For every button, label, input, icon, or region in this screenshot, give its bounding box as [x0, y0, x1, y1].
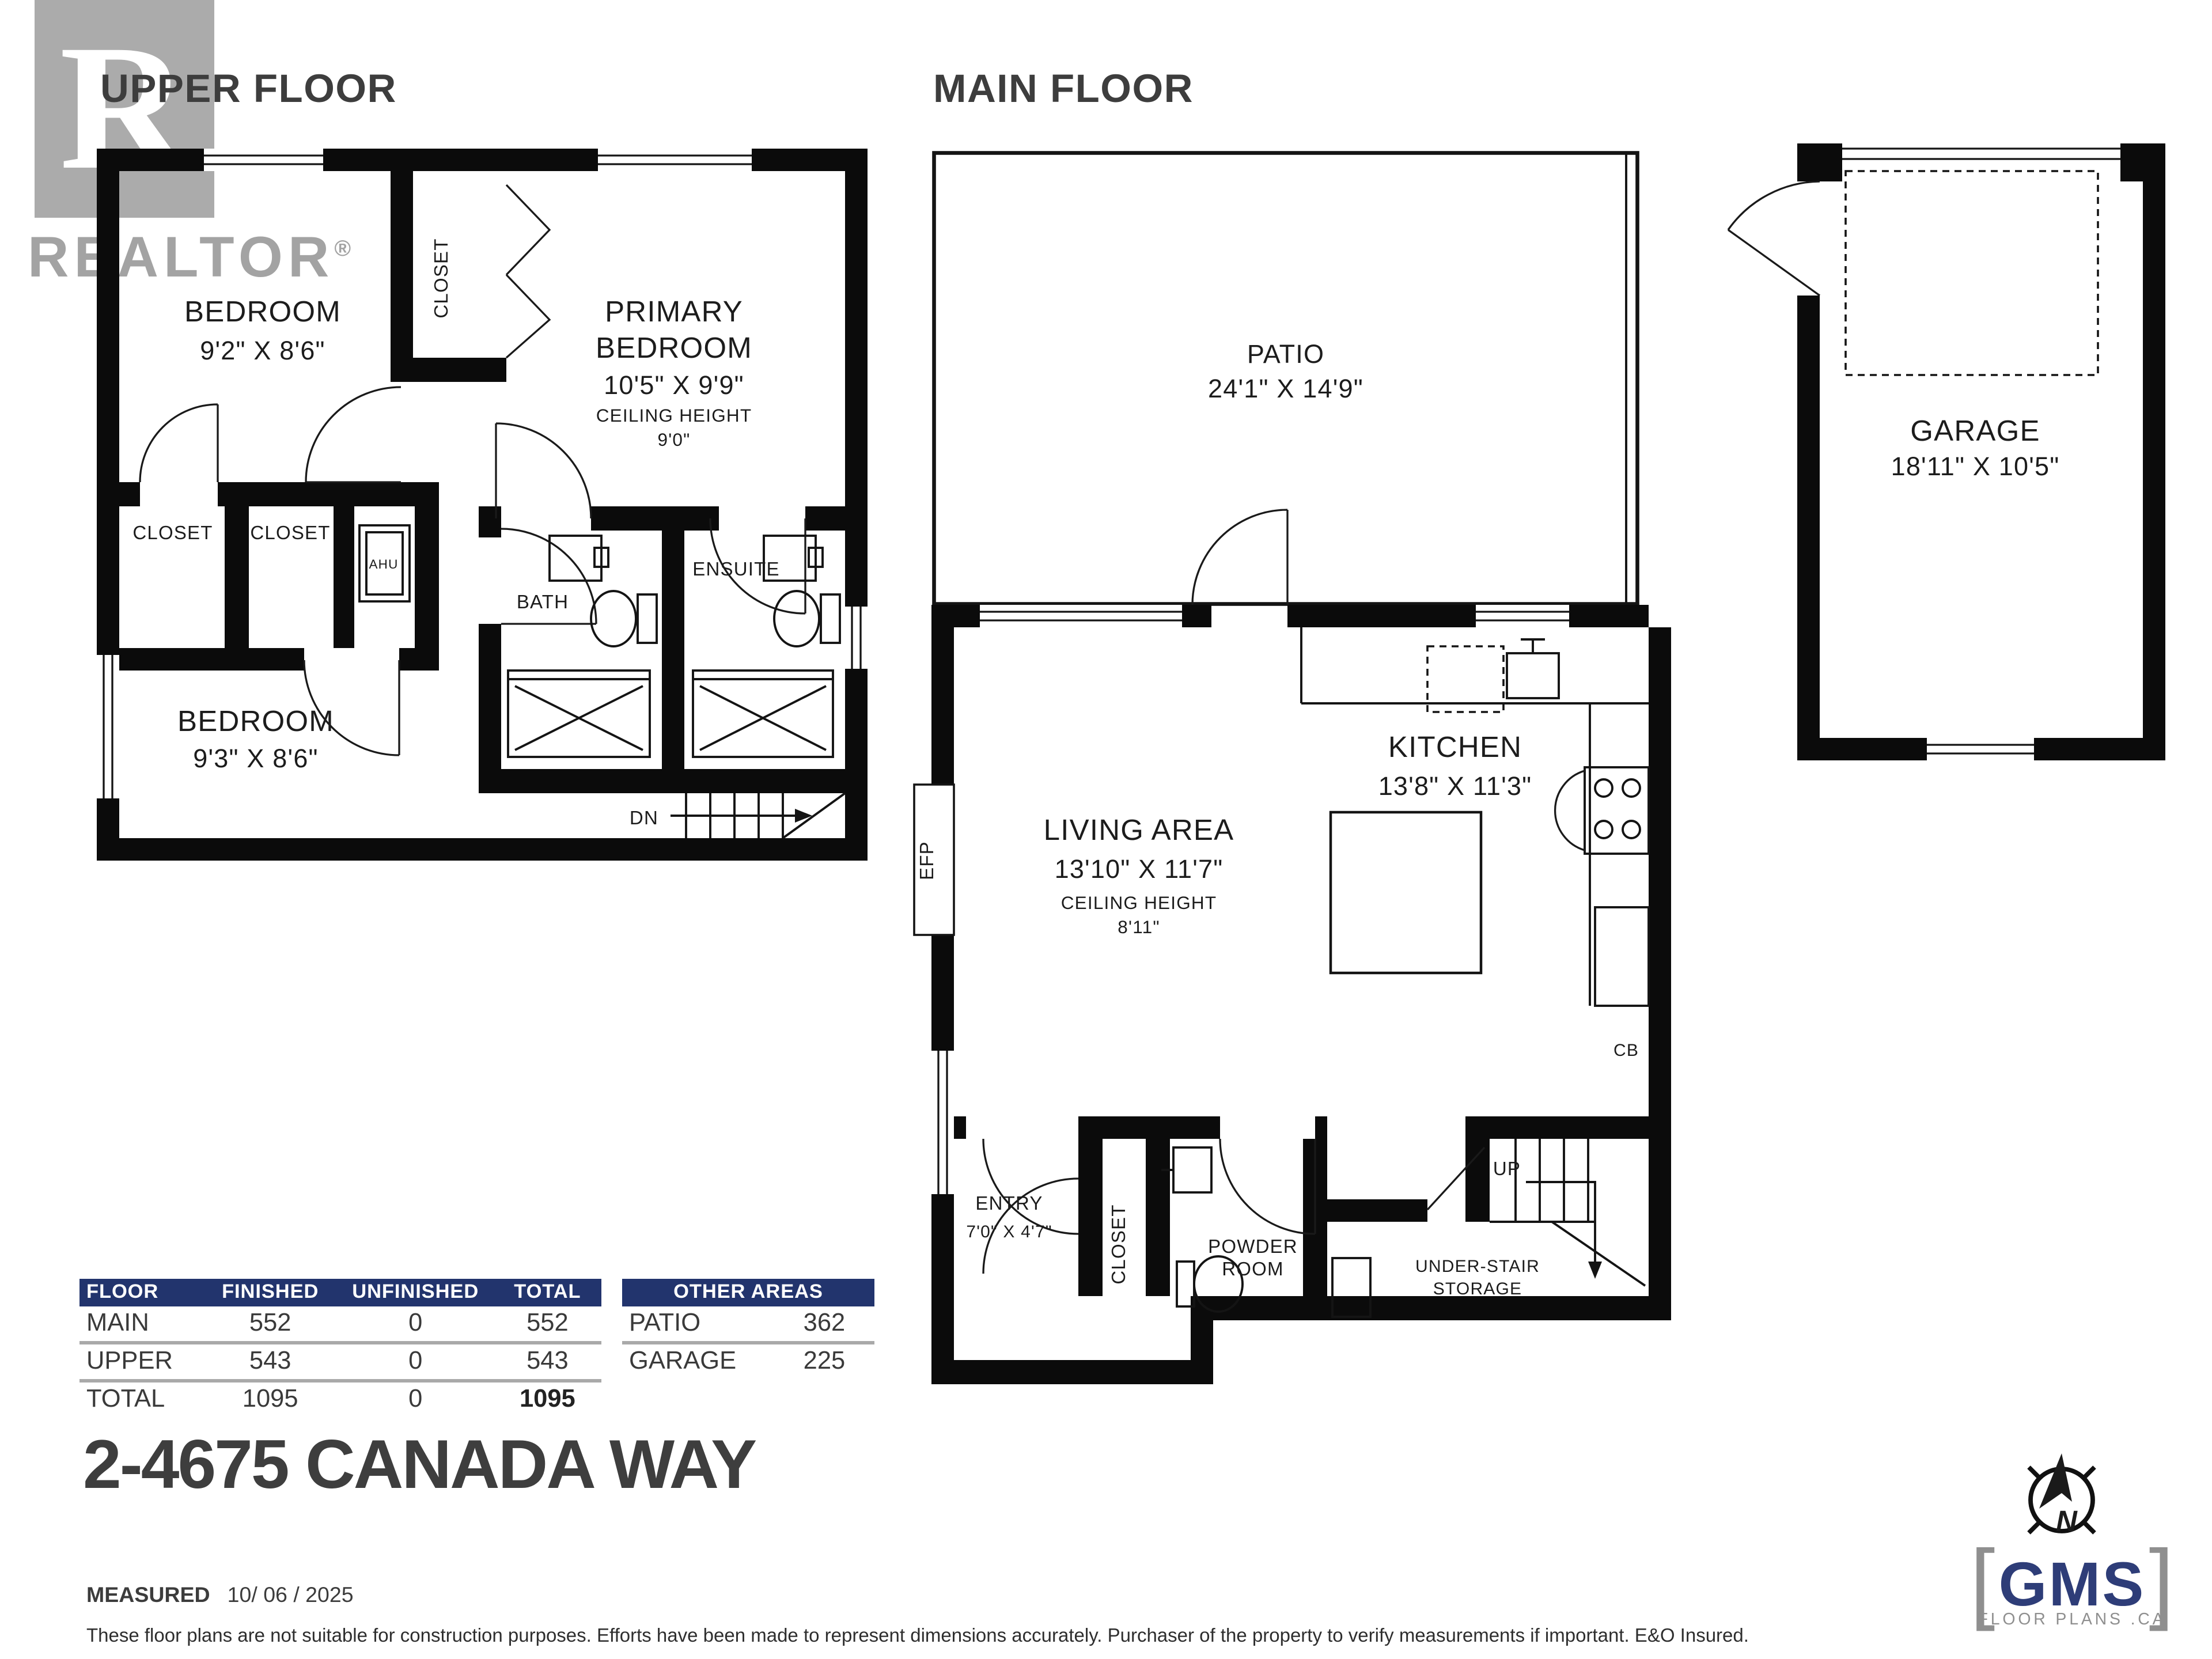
- garage-plan: GARAGE 18'11" X 10'5": [1694, 143, 2165, 760]
- logo-tagline: FLOOR PLANS .CA: [1960, 1610, 2184, 1629]
- cell-unfinished: 0: [338, 1343, 494, 1381]
- room-dims-patio: 24'1" X 14'9": [1208, 374, 1363, 403]
- room-label-closet-mid: CLOSET: [250, 522, 330, 543]
- stairs-dn-label: DN: [630, 807, 658, 828]
- measured-label: MEASURED: [86, 1583, 210, 1607]
- cell-finished: 543: [203, 1343, 338, 1381]
- room-label-bedroom2: BEDROOM: [177, 704, 334, 737]
- upper-floor-title: UPPER FLOOR: [100, 66, 397, 112]
- room-label-storage-1: UNDER-STAIR: [1415, 1257, 1540, 1276]
- table-total-row: TOTAL 1095 0 1095: [79, 1381, 601, 1417]
- efp-label: EFP: [916, 841, 937, 880]
- kitchen-island: [1331, 812, 1481, 973]
- table-header-row: OTHER AREAS: [622, 1279, 874, 1306]
- col-header-finished: FINISHED: [203, 1279, 338, 1306]
- other-areas-table: OTHER AREAS PATIO 362 GARAGE 225: [622, 1279, 874, 1379]
- room-ceiling-value-living: 8'11": [1118, 916, 1160, 937]
- room-label-closet-top: CLOSET: [430, 238, 452, 318]
- room-dims-bedroom1: 9'2" X 8'6": [200, 336, 325, 365]
- compass-icon: N: [2012, 1448, 2112, 1548]
- main-floor-title: MAIN FLOOR: [933, 66, 1194, 112]
- logo-bracket-right: ]: [2149, 1548, 2174, 1620]
- disclaimer-text: These floor plans are not suitable for c…: [86, 1626, 1538, 1647]
- col-header-floor: FLOOR: [79, 1279, 203, 1306]
- measured-date: MEASURED10/ 06 / 2025: [86, 1583, 354, 1607]
- table-row: PATIO 362: [622, 1306, 874, 1343]
- table-row: MAIN 552 0 552: [79, 1306, 601, 1343]
- room-label-closet-left: CLOSET: [132, 522, 213, 543]
- toilet-icon: [591, 591, 840, 646]
- main-floor-plan: PATIO 24'1" X 14'9" EFP CB LIVING AREA 1…: [914, 149, 1683, 1402]
- room-ceiling-label-primary: CEILING HEIGHT: [596, 405, 752, 426]
- room-label-entry: ENTRY: [975, 1192, 1043, 1214]
- stove-icon: [1555, 767, 1649, 854]
- col-header-other-areas: OTHER AREAS: [622, 1279, 874, 1306]
- cell-area-name: GARAGE: [622, 1343, 774, 1379]
- measured-value: 10/ 06 / 2025: [228, 1583, 354, 1607]
- stairs-down: [671, 793, 845, 838]
- room-label-kitchen: KITCHEN: [1388, 730, 1522, 763]
- compass-north-label: N: [2056, 1505, 2078, 1537]
- cb-label: CB: [1613, 1041, 1639, 1060]
- cell-total-finished: 1095: [203, 1381, 338, 1417]
- table-row: GARAGE 225: [622, 1343, 874, 1379]
- room-ceiling-value-primary: 9'0": [657, 429, 690, 450]
- upper-floor-plan: BEDROOM 9'2" X 8'6" CLOSET PRIMARY BEDRO…: [97, 149, 868, 861]
- property-address: 2-4675 CANADA WAY: [83, 1427, 755, 1505]
- kitchen-counter: [1301, 627, 1649, 1006]
- cell-finished: 552: [203, 1306, 338, 1343]
- window-icon: [931, 605, 1569, 1194]
- room-label-garage: GARAGE: [1910, 414, 2040, 447]
- room-label-powder-2: ROOM: [1222, 1258, 1283, 1279]
- room-dims-garage: 18'11" X 10'5": [1891, 452, 2060, 481]
- cell-area-value: 225: [774, 1343, 874, 1379]
- dishwasher-icon: [1427, 646, 1503, 712]
- room-ceiling-label-living: CEILING HEIGHT: [1061, 892, 1217, 913]
- cell-unfinished: 0: [338, 1306, 494, 1343]
- table-row: UPPER 543 0 543: [79, 1343, 601, 1381]
- door-arc-icon: [1192, 510, 1287, 605]
- cell-total: 552: [494, 1306, 601, 1343]
- area-table: FLOOR FINISHED UNFINISHED TOTAL MAIN 552…: [79, 1279, 601, 1417]
- logo-name: GMS: [1995, 1556, 2149, 1612]
- col-header-unfinished: UNFINISHED: [338, 1279, 494, 1306]
- room-label-living: LIVING AREA: [1044, 813, 1234, 846]
- window-icon: [1927, 738, 2034, 760]
- room-dims-primary: 10'5" X 9'9": [604, 370, 744, 400]
- room-label-powder-1: POWDER: [1208, 1236, 1298, 1257]
- logo-bracket-left: [: [1970, 1548, 1995, 1620]
- cell-total: 543: [494, 1343, 601, 1381]
- stairs-up-label: UP: [1493, 1158, 1521, 1179]
- room-dims-bedroom2: 9'3" X 8'6": [193, 744, 318, 773]
- cell-total-total: 1095: [494, 1381, 601, 1417]
- cell-floor: MAIN: [79, 1306, 203, 1343]
- cell-total-unfinished: 0: [338, 1381, 494, 1417]
- cell-area-name: PATIO: [622, 1306, 774, 1343]
- kitchen-sink-icon: [1507, 639, 1559, 698]
- sink-icon: [550, 536, 823, 581]
- efp-panel: EFP: [914, 785, 954, 935]
- parking-space-outline: [1846, 171, 2098, 375]
- room-label-ensuite: ENSUITE: [692, 558, 779, 579]
- room-label-patio: PATIO: [1247, 339, 1324, 369]
- room-dims-entry: 7'0" X 4'7": [966, 1222, 1052, 1241]
- room-label-closet-main: CLOSET: [1108, 1204, 1129, 1284]
- door-arc-icon: [1220, 1139, 1315, 1234]
- cell-area-value: 362: [774, 1306, 874, 1343]
- room-label-bedroom1: BEDROOM: [184, 295, 341, 328]
- door-arc-icon: [1728, 181, 1820, 296]
- room-label-primary-2: BEDROOM: [596, 331, 752, 364]
- table-header-row: FLOOR FINISHED UNFINISHED TOTAL: [79, 1279, 601, 1306]
- room-dims-kitchen: 13'8" X 11'3": [1378, 771, 1532, 801]
- room-label-bath: BATH: [517, 591, 569, 612]
- cell-total-label: TOTAL: [79, 1381, 203, 1417]
- room-dims-living: 13'10" X 11'7": [1055, 854, 1224, 884]
- gms-logo: [ GMS ] FLOOR PLANS .CA: [1960, 1548, 2184, 1629]
- cell-floor: UPPER: [79, 1343, 203, 1381]
- room-label-storage-2: STORAGE: [1433, 1279, 1522, 1298]
- room-label-primary-1: PRIMARY: [605, 295, 743, 328]
- fridge-icon: [1595, 907, 1649, 1006]
- room-label-ahu: AHU: [369, 557, 398, 571]
- col-header-total: TOTAL: [494, 1279, 601, 1306]
